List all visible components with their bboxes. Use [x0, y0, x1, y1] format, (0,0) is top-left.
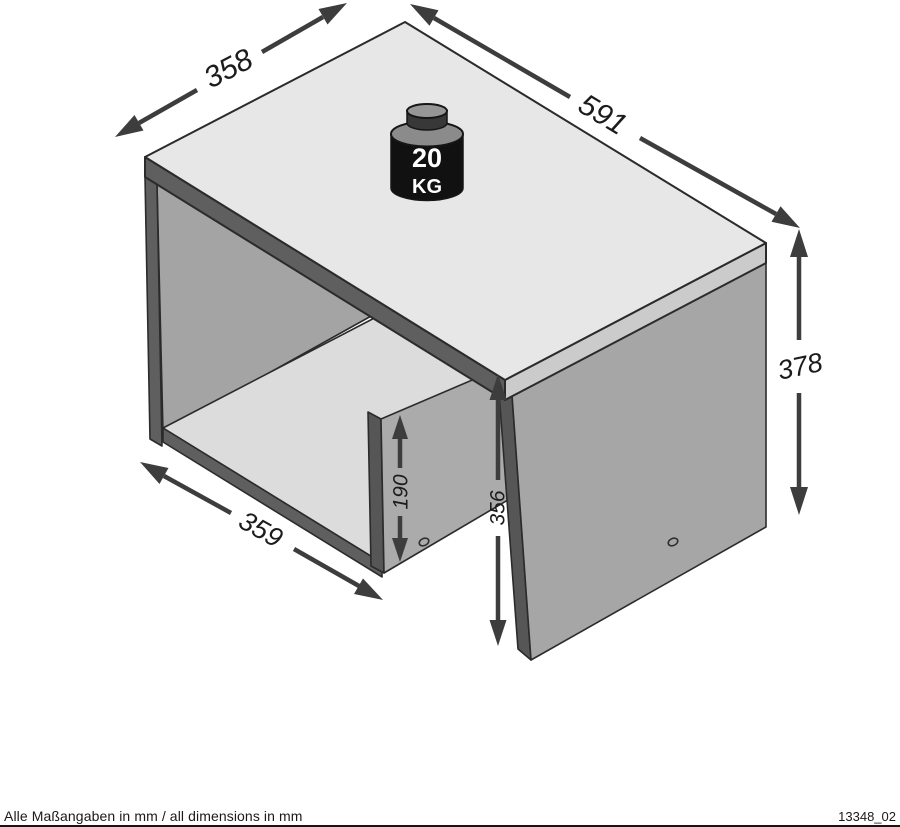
arrowhead — [790, 229, 808, 257]
weight-value: 20 — [412, 143, 442, 173]
furniture-dimension-diagram: 20 KG 358 591 378 359 190 — [0, 0, 900, 827]
weight-unit: KG — [412, 176, 442, 198]
dimension-label-356: 356 — [486, 490, 509, 525]
arrowhead — [410, 4, 439, 26]
weight-knob-top — [407, 104, 447, 118]
arrowhead — [790, 487, 808, 515]
arrowhead — [772, 206, 801, 228]
measurement-note: Alle Maßangaben in mm / all dimensions i… — [4, 808, 303, 824]
dimension-label-378: 378 — [775, 347, 825, 386]
arrowhead — [490, 620, 507, 646]
drawing-id: 13348_02 — [838, 809, 896, 824]
arrowhead — [140, 462, 169, 484]
dimension-label-358: 358 — [199, 43, 259, 96]
arrowhead — [115, 115, 144, 137]
arrowhead — [319, 3, 348, 25]
arrowhead — [354, 579, 383, 601]
dimension-label-190: 190 — [389, 474, 412, 509]
dimension-height-right: 378 — [775, 229, 825, 515]
